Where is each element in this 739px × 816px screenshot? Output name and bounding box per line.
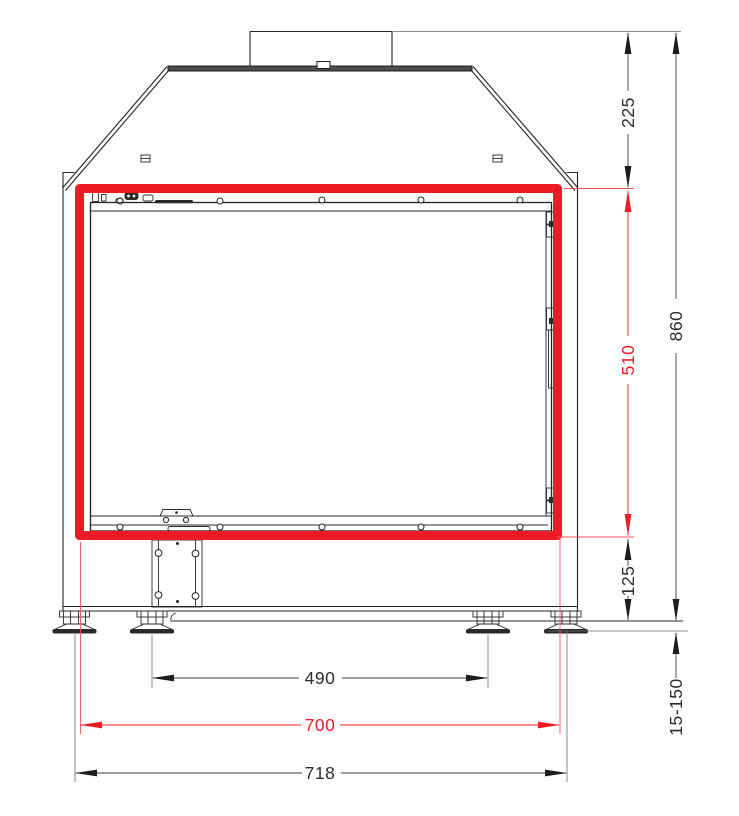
dimension-860: 860: [666, 32, 686, 621]
dimension-225: 225: [618, 32, 638, 188]
leg-2: [130, 611, 174, 634]
dim-label-15-150: 15-150: [666, 678, 686, 736]
plate-notch: [317, 62, 330, 69]
hood-clip-left: [141, 155, 150, 162]
firebox-door: [91, 192, 556, 531]
dimension-125: 125: [618, 539, 638, 621]
dimension-718: 718: [75, 763, 567, 783]
drawing-canvas: 225 510 125 860 15-150 490: [0, 0, 739, 816]
extension-lines: [75, 32, 688, 783]
dim-label-700: 700: [305, 715, 336, 735]
leg-1: [53, 611, 97, 634]
fireplace-technical-drawing: 225 510 125 860 15-150 490: [0, 0, 739, 816]
dim-label-225: 225: [618, 97, 638, 128]
dimension-15-150: 15-150: [666, 632, 686, 736]
hood-clip-right: [493, 155, 502, 162]
dimension-490: 490: [152, 668, 488, 688]
dim-label-510: 510: [618, 345, 638, 376]
door-latch-hardware: [93, 192, 194, 203]
hood: [63, 62, 579, 193]
dimension-510: 510: [618, 190, 638, 536]
dim-label-718: 718: [305, 763, 336, 783]
pedestal-bracket: [152, 540, 202, 607]
leg-4: [544, 611, 588, 634]
leg-3: [466, 611, 510, 634]
legs: [53, 611, 589, 634]
dim-label-125: 125: [618, 566, 638, 597]
dimension-700: 700: [80, 715, 560, 735]
highlight-rectangle: [80, 189, 558, 536]
dim-label-860: 860: [666, 311, 686, 342]
dim-label-490: 490: [305, 668, 336, 688]
door-bottom-bracket: [160, 510, 210, 532]
